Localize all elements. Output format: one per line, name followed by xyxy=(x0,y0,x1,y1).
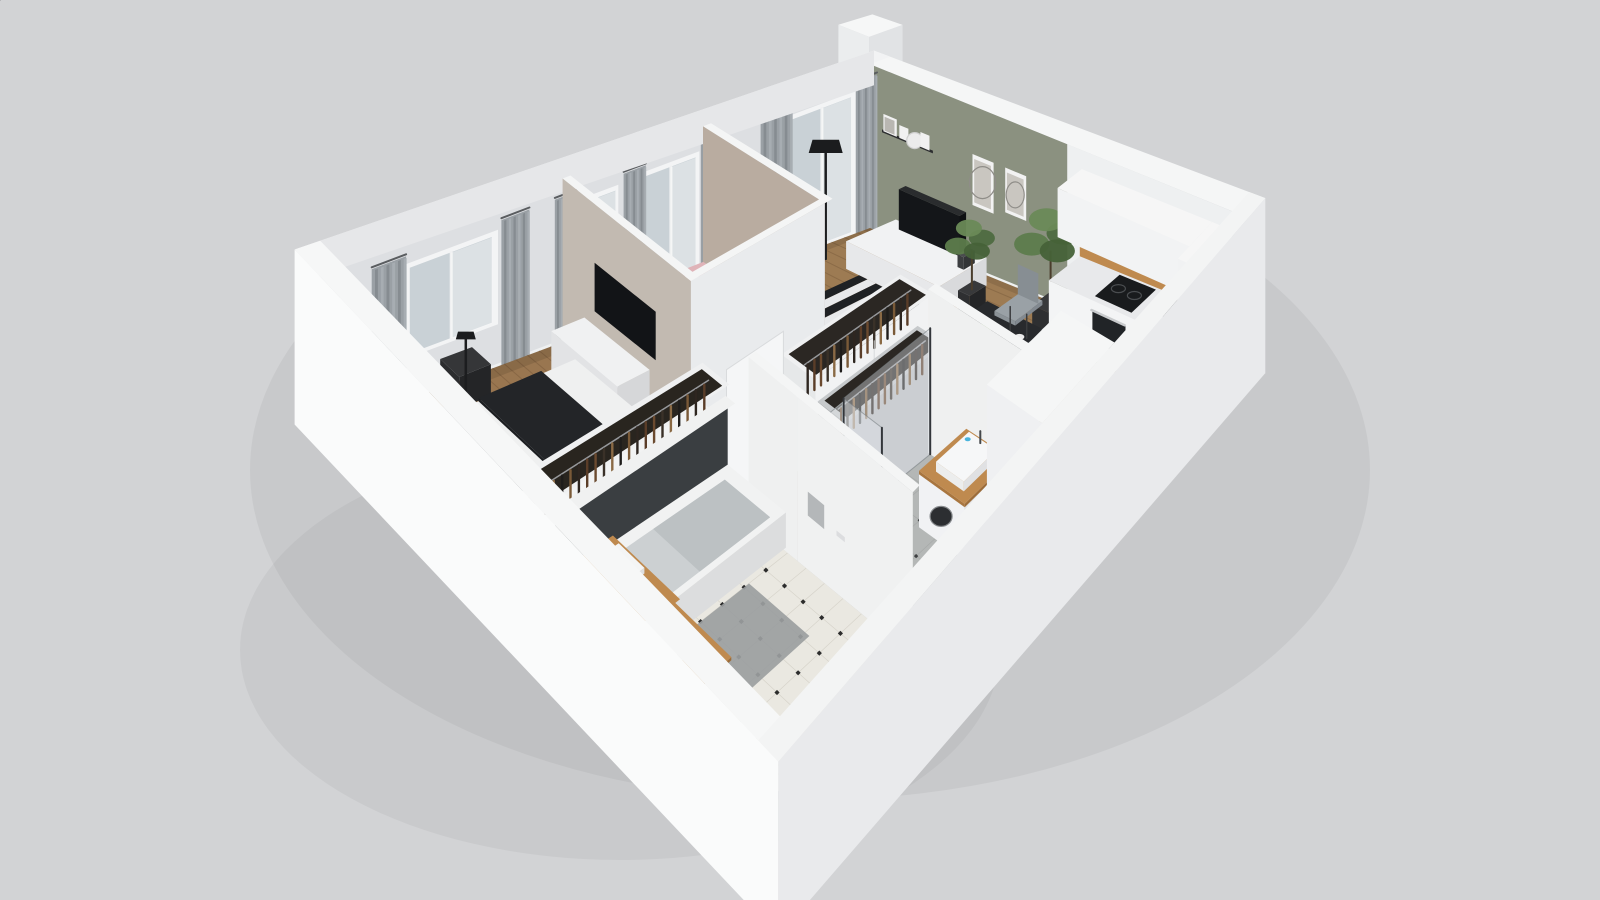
bedroom2-curtain-right-pleat xyxy=(561,199,563,348)
master-window-sheen xyxy=(451,237,492,338)
master-curtain-left-pleat xyxy=(523,213,525,363)
living-curtain-left-pleat xyxy=(865,80,867,233)
master-curtain-left-pleat xyxy=(514,216,516,366)
poster-2-art xyxy=(1007,173,1024,217)
floor-lamp-shade xyxy=(809,140,843,153)
bedroom2-curtain-right-pleat xyxy=(557,200,559,349)
plant-by-kitchen-leaf xyxy=(1040,239,1075,262)
living-curtain-left-pleat xyxy=(858,83,860,236)
master-curtain-left-pleat xyxy=(518,215,520,365)
master-nightstand-lamp-shade xyxy=(456,332,476,340)
master-curtain-left-pleat xyxy=(509,218,511,368)
master-curtain-left-pleat xyxy=(528,211,530,361)
living-curtain-left-pleat xyxy=(862,81,864,234)
plant-by-tv-leaf xyxy=(964,243,990,260)
shelf-plate-decor xyxy=(907,133,923,149)
sink-soap xyxy=(965,437,971,441)
plant-by-tv-leaf xyxy=(956,220,982,237)
living-curtain-left-pleat xyxy=(872,77,874,230)
washing-machine-door xyxy=(930,506,952,526)
master-curtain-left-pleat xyxy=(504,220,506,370)
floor-plan-3d-render: ❄ xyxy=(0,0,1600,900)
floor-plan-stage: ❄ xyxy=(0,0,1600,900)
living-curtain-left-pleat xyxy=(869,79,871,232)
living-curtain-left-pleat xyxy=(876,76,878,229)
